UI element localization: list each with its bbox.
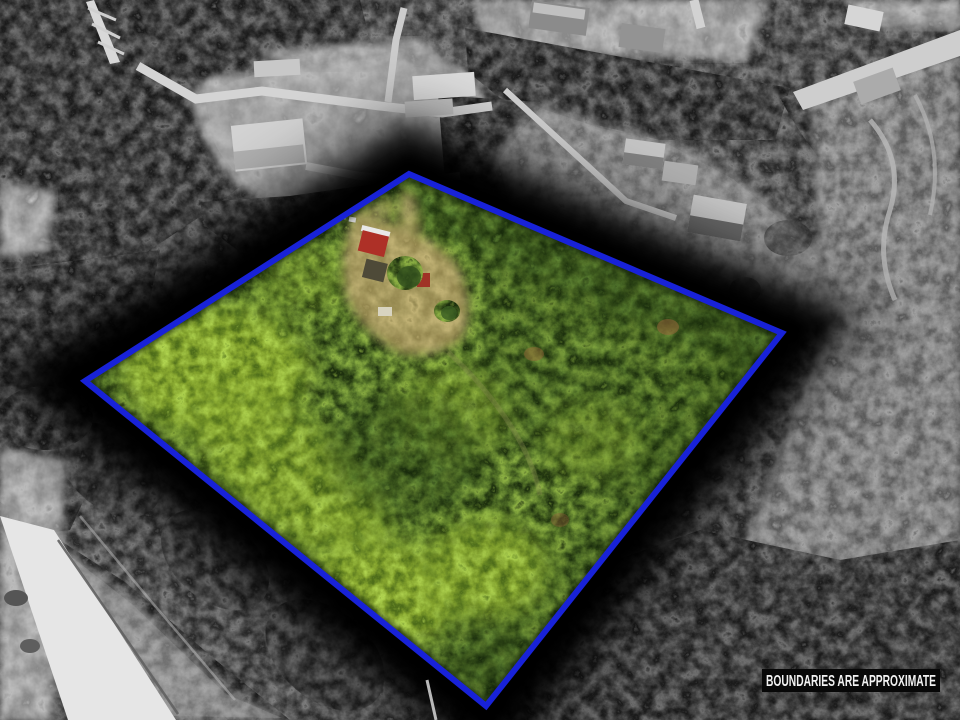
svg-text:BOUNDARIES ARE APPROXIMATE: BOUNDARIES ARE APPROXIMATE — [766, 673, 936, 690]
